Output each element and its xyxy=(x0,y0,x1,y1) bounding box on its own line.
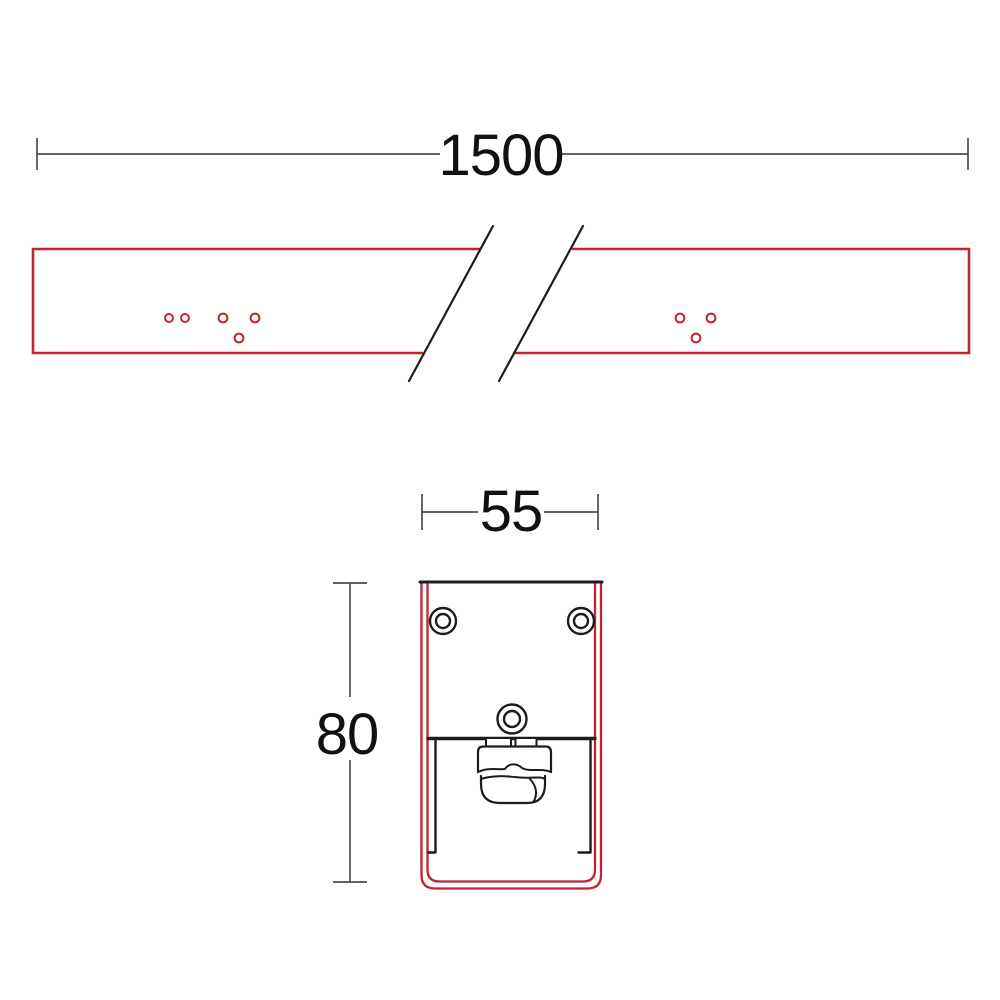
screw-inner-circle xyxy=(504,711,520,727)
hole xyxy=(251,314,260,323)
break-line-right xyxy=(499,226,583,381)
screw-head-center xyxy=(498,705,527,734)
screw-inner-circle xyxy=(574,614,588,628)
clamp-cup-inner-curve xyxy=(530,779,536,802)
clamp-body xyxy=(478,747,551,773)
hole xyxy=(707,314,716,323)
mounting-holes xyxy=(165,314,715,343)
channel-wall-left xyxy=(429,741,436,853)
hole xyxy=(181,314,189,322)
clamp-spring-wave-lower xyxy=(481,776,545,779)
channel-wall-right xyxy=(579,741,591,853)
front-view-profile xyxy=(33,249,969,353)
length-dimension-value: 1500 xyxy=(438,123,563,188)
width-dimension-value: 55 xyxy=(480,479,543,544)
technical-drawing: 1500 55 xyxy=(0,0,1000,1000)
hole xyxy=(219,314,228,323)
profile-bar-right-part xyxy=(513,249,969,353)
hole xyxy=(692,334,701,343)
section-details-black xyxy=(420,582,602,853)
height-dimension-value: 80 xyxy=(316,702,379,767)
drawing-canvas: 1500 55 xyxy=(0,0,1000,1000)
screw-head-left xyxy=(430,608,456,634)
hole xyxy=(235,334,244,343)
screw-inner-circle xyxy=(436,614,450,628)
profile-bar-left-part xyxy=(33,249,480,353)
hole xyxy=(165,314,173,322)
screw-head-right xyxy=(568,608,594,634)
hole xyxy=(676,314,685,323)
